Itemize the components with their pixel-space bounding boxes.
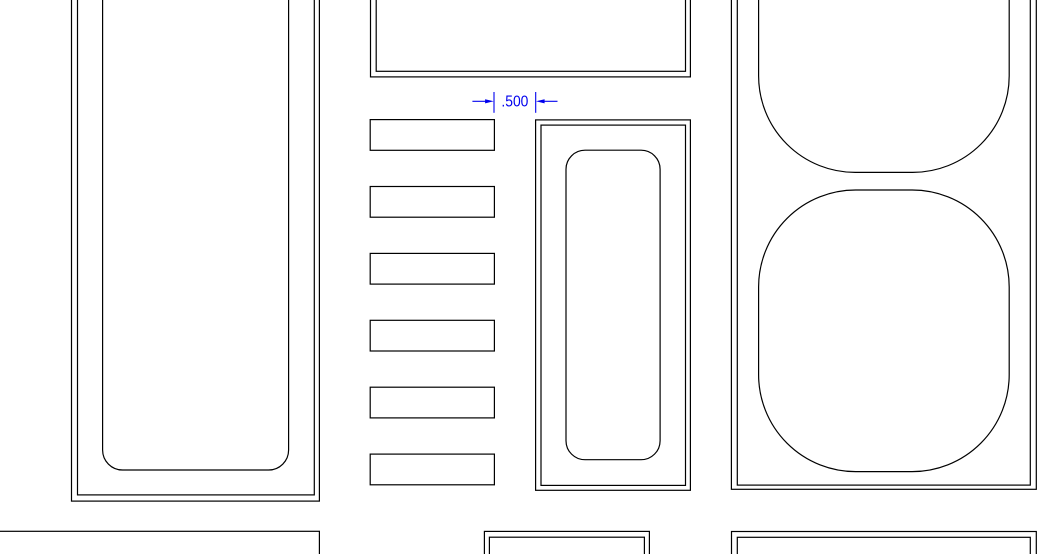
- svg-text:.500: .500: [501, 93, 528, 110]
